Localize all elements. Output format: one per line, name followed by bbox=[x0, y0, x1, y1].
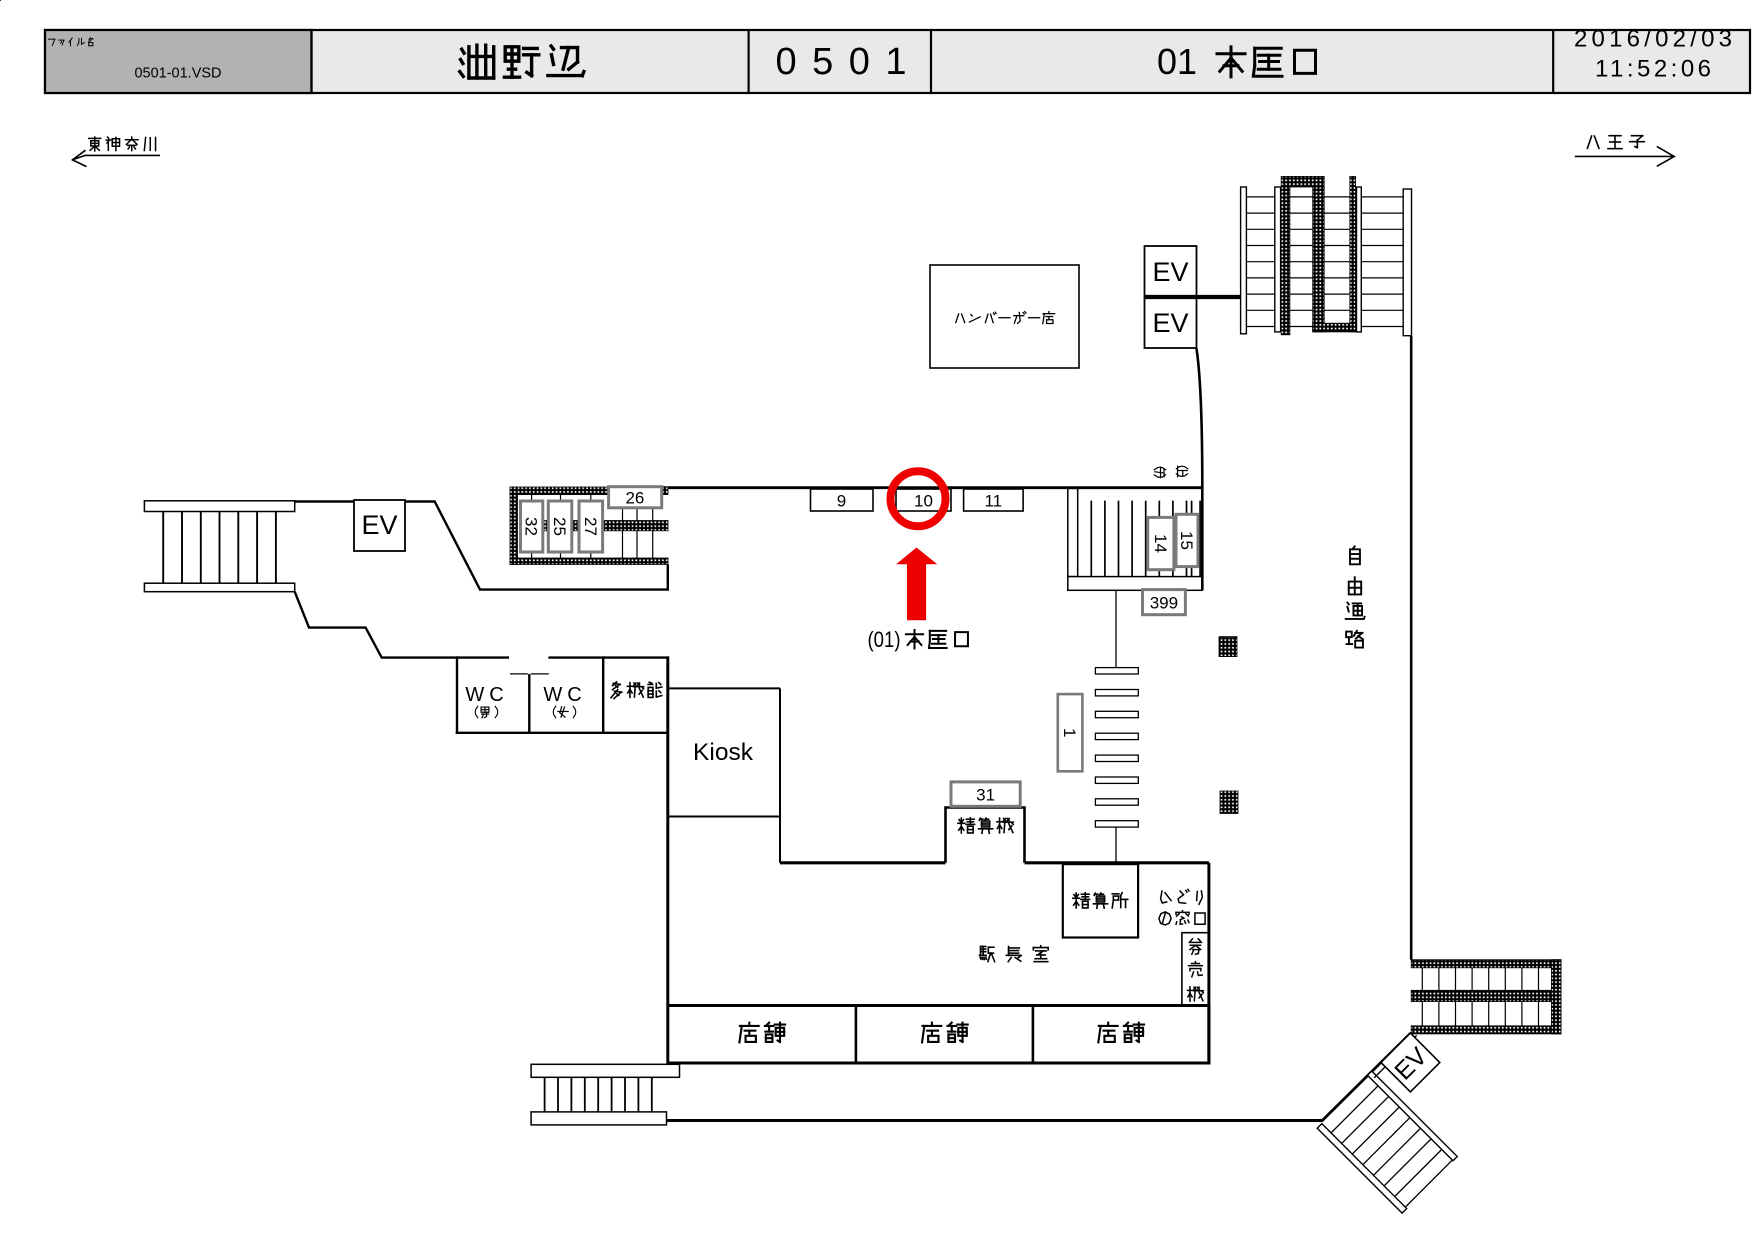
svg-text:10: 10 bbox=[914, 492, 933, 511]
svg-text:9: 9 bbox=[837, 492, 846, 511]
svg-text:11:52:06: 11:52:06 bbox=[1595, 56, 1711, 83]
svg-text:399: 399 bbox=[1150, 594, 1178, 613]
svg-text:32: 32 bbox=[522, 517, 541, 536]
svg-text:01: 01 bbox=[1157, 41, 1197, 82]
svg-text:26: 26 bbox=[625, 489, 644, 508]
svg-text:Kiosk: Kiosk bbox=[693, 739, 754, 766]
svg-text:25: 25 bbox=[550, 517, 569, 536]
svg-text:WC: WC bbox=[465, 684, 508, 706]
svg-text:15: 15 bbox=[1177, 531, 1196, 550]
svg-text:WC: WC bbox=[543, 684, 586, 706]
svg-text:14: 14 bbox=[1151, 534, 1170, 553]
svg-text:(01): (01) bbox=[868, 627, 901, 652]
svg-text:EV: EV bbox=[361, 510, 397, 540]
svg-text:31: 31 bbox=[976, 786, 995, 805]
svg-text:27: 27 bbox=[581, 517, 600, 536]
svg-text:1: 1 bbox=[1060, 728, 1079, 737]
svg-text:EV: EV bbox=[1152, 308, 1188, 338]
svg-text:0501-01.VSD: 0501-01.VSD bbox=[134, 66, 221, 82]
svg-text:EV: EV bbox=[1152, 257, 1188, 287]
svg-text:11: 11 bbox=[984, 492, 1002, 511]
